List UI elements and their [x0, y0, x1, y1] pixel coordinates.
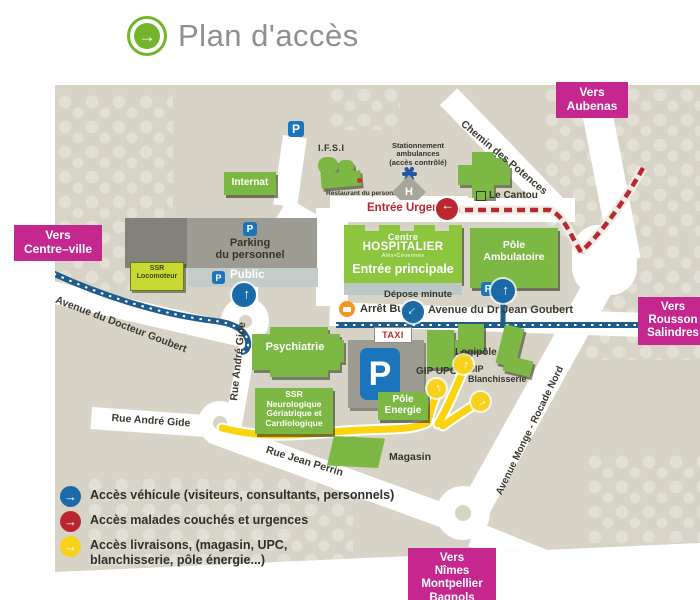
- direction-sign-aubenas: Vers Aubenas: [556, 82, 628, 118]
- street-avenue-dr-jean-goubert: Avenue du Dr Jean Goubert: [428, 304, 573, 316]
- parking-icon: P: [243, 222, 257, 236]
- vehicle-arrow-icon: →: [232, 283, 256, 307]
- parking-icon: P: [288, 121, 304, 137]
- legend-label: Accès malades couchés et urgences: [90, 511, 308, 528]
- urgences-arrow-icon: →: [436, 198, 458, 220]
- delivery-arrow-icon: →: [427, 379, 446, 398]
- delivery-access-icon: →: [60, 536, 81, 557]
- ssr-neurologique-label: SSR Neurologique Gériatrique et Cardiolo…: [255, 390, 333, 428]
- hopital-letter: H: [405, 186, 413, 198]
- direction-sign-centre-ville: Vers Centre–ville: [14, 225, 102, 261]
- magasin-label: Magasin: [389, 452, 431, 464]
- parking-icon: P: [212, 271, 225, 284]
- legend-item-malades: → Accès malades couchés et urgences: [60, 511, 308, 532]
- legend-item-livraisons: → Accès livraisons, (magasin, UPC, blanc…: [60, 536, 287, 568]
- building-notch: [435, 225, 449, 231]
- parking-personnel-dark-wing: [125, 218, 187, 268]
- ifsi-label: I.F.S.I: [318, 144, 345, 154]
- hopital-logo-sub: Alès•Cévennes: [382, 253, 425, 259]
- parking-personnel-label: Parking du personnel: [195, 237, 305, 261]
- roundabout-center: [455, 505, 471, 521]
- direction-sign-rousson: Vers Rousson Salindres: [638, 297, 700, 345]
- le-cantou-label: Le Cantou: [489, 190, 538, 201]
- delivery-arrow-icon: →: [471, 392, 490, 411]
- trees-pattern: [330, 88, 400, 130]
- internat-label: Internat: [224, 177, 276, 188]
- emergency-access-icon: →: [60, 511, 81, 532]
- vehicle-access-icon: →: [60, 486, 81, 507]
- access-arrow-icon: →: [127, 16, 167, 56]
- trees-pattern: [588, 455, 700, 543]
- magasin-building: [327, 436, 385, 468]
- road-junction-blob: [572, 225, 637, 295]
- bus-stop-icon: [339, 301, 355, 317]
- gip-upc-label: GIP UPC: [416, 366, 457, 377]
- building-notch: [400, 225, 414, 231]
- stationnement-ambulances-label: Stationnement ambulances (accès contrôlé…: [378, 142, 458, 167]
- taxi-sign: TAXI: [374, 327, 412, 343]
- pole-energie-label: Pôle Energie: [378, 394, 428, 416]
- ssr-locomoteur-label: SSR Locomoteur: [130, 265, 184, 282]
- parking-public-label: Public: [230, 269, 265, 281]
- delivery-arrow-icon: →: [454, 355, 473, 374]
- legend-label: Accès livraisons, (magasin, UPC, blanchi…: [90, 536, 287, 568]
- vehicle-arrow-icon: →: [402, 301, 424, 323]
- depose-minute-label: Dépose minute: [384, 290, 452, 300]
- ifsi-entrance-dot: [357, 178, 362, 183]
- hopital-logo-name: HOSPITALIER: [363, 242, 444, 254]
- entree-principale-label: Entrée principale: [352, 262, 453, 276]
- psychiatrie-label: Psychiatrie: [255, 341, 335, 353]
- right-arrow-glyph: →: [139, 28, 156, 45]
- hopital-building: Centre HOSPITALIER Alès•Cévennes Entrée …: [344, 225, 462, 283]
- pole-ambulatoire-label: Pôle Ambulatoire: [470, 240, 558, 264]
- roundabout-center: [213, 416, 227, 430]
- legend-item-vehicule: → Accès véhicule (visiteurs, consultants…: [60, 486, 394, 507]
- ifsi-buildings: [316, 155, 376, 195]
- le-cantou-marker: [476, 191, 486, 201]
- vehicle-arrow-icon: →: [491, 279, 515, 303]
- legend-label: Accès véhicule (visiteurs, consultants, …: [90, 486, 394, 503]
- building-notch: [365, 225, 379, 231]
- page-title: Plan d'accès: [178, 18, 359, 54]
- gip-blanchisserie-label: GIP Blanchisserie: [468, 365, 534, 385]
- plan-dacces-page: → Plan d'accès: [0, 0, 700, 600]
- direction-sign-nimes: Vers Nîmes Montpellier Bagnols: [408, 548, 496, 600]
